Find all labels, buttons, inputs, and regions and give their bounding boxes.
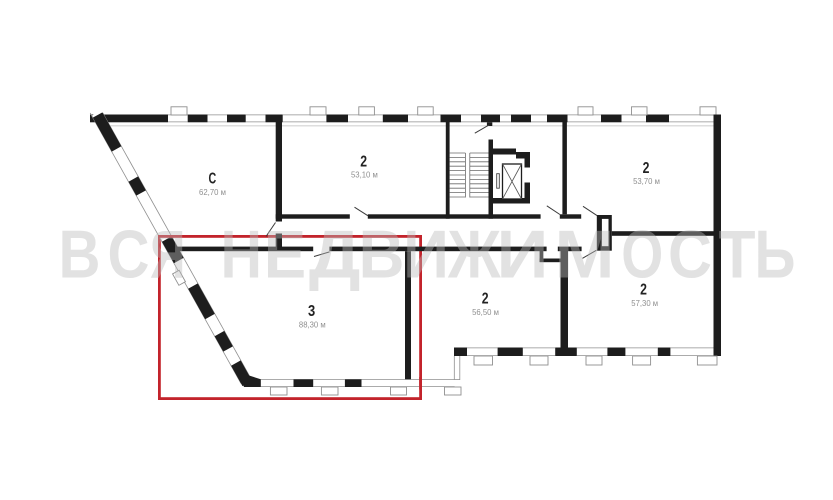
- svg-text:И: И: [497, 218, 549, 293]
- svg-text:2: 2: [643, 160, 650, 177]
- svg-text:И: И: [403, 218, 449, 293]
- svg-text:3: 3: [308, 303, 315, 320]
- svg-text:88,30 м: 88,30 м: [299, 319, 326, 329]
- svg-text:53,10 м: 53,10 м: [351, 170, 378, 180]
- svg-text:Д: Д: [309, 218, 361, 293]
- svg-text:56,50 м: 56,50 м: [472, 307, 499, 317]
- svg-text:Е: Е: [264, 218, 306, 293]
- svg-text:Т: Т: [719, 218, 756, 293]
- svg-text:М: М: [555, 218, 615, 293]
- svg-text:В: В: [59, 218, 101, 293]
- svg-text:C: C: [209, 171, 217, 188]
- svg-text:Ь: Ь: [755, 218, 796, 293]
- svg-text:С: С: [668, 218, 712, 293]
- svg-text:53,70 м: 53,70 м: [633, 176, 660, 186]
- svg-text:2: 2: [482, 291, 489, 308]
- svg-text:С: С: [108, 218, 150, 293]
- svg-text:Ж: Ж: [447, 218, 501, 293]
- svg-text:В: В: [359, 218, 405, 293]
- svg-text:Я: Я: [150, 218, 186, 293]
- svg-text:Н: Н: [221, 218, 263, 293]
- svg-text:62,70 м: 62,70 м: [199, 187, 226, 197]
- svg-text:57,30 м: 57,30 м: [631, 298, 658, 308]
- svg-text:2: 2: [360, 154, 367, 171]
- svg-text:О: О: [621, 218, 663, 293]
